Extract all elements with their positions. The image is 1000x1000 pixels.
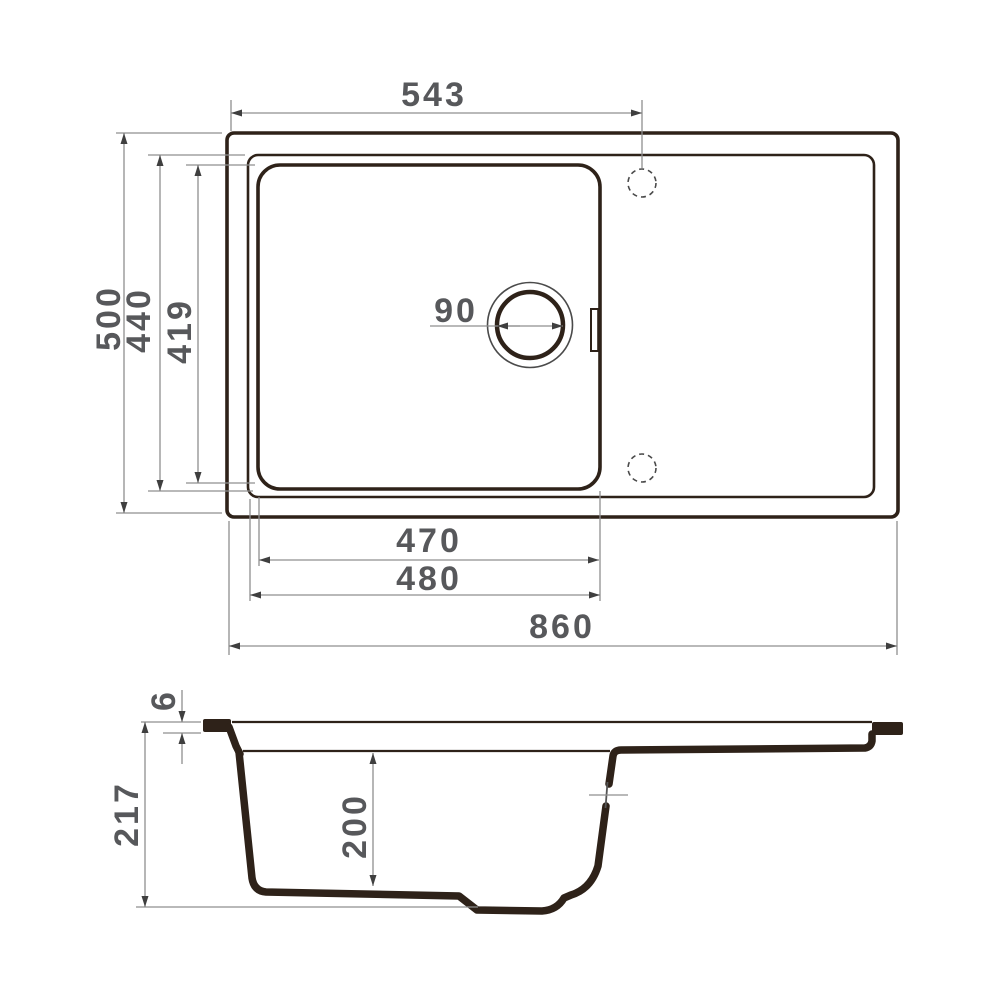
dim-label: 90 <box>434 292 478 330</box>
dim-label: 543 <box>401 76 467 114</box>
dim-label: 470 <box>396 522 462 560</box>
tap-hole-top-icon <box>628 169 656 197</box>
dim-label: 419 <box>161 298 199 364</box>
overflow-slot <box>591 309 598 351</box>
dim-label: 440 <box>120 287 158 353</box>
dim-419: 419 <box>161 165 255 483</box>
sink-technical-drawing: 543 500 440 419 90 <box>0 0 1000 1000</box>
top-view: 543 500 440 419 90 <box>90 76 898 655</box>
drawing-canvas: 543 500 440 419 90 <box>0 0 1000 1000</box>
dim-label: 6 <box>145 689 183 711</box>
tap-hole-bottom-icon <box>628 454 656 482</box>
drainboard-profile <box>609 734 872 784</box>
drain-recess-circle <box>488 283 573 368</box>
bowl-edge <box>258 165 600 489</box>
dim-6: 6 <box>141 689 201 764</box>
right-rim-block <box>872 722 903 735</box>
drain-hole-circle <box>497 292 563 358</box>
dim-217: 217 <box>108 722 478 907</box>
dim-label: 200 <box>336 793 374 859</box>
section-view: 6 217 200 <box>108 689 903 911</box>
dim-label: 480 <box>396 560 462 598</box>
dim-label: 860 <box>529 608 595 646</box>
dim-200: 200 <box>336 753 374 886</box>
bowl-profile <box>239 752 606 911</box>
dim-860: 860 <box>229 521 897 655</box>
dim-label: 217 <box>108 781 146 847</box>
